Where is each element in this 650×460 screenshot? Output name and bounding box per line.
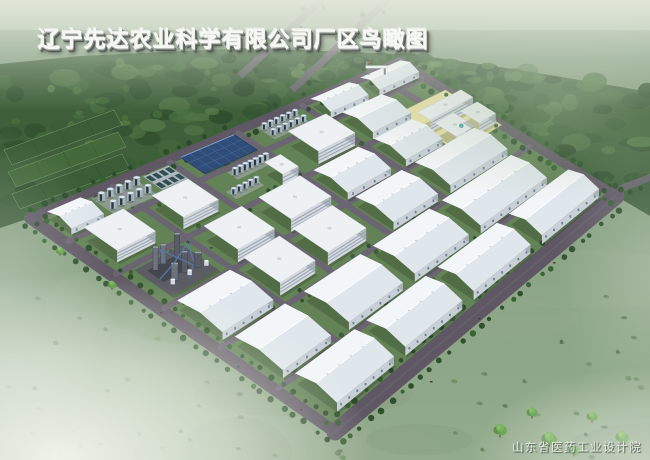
birdseye-rendering: 辽宁先达农业科学有限公司厂区鸟瞰图 山东省医药工业设计院 <box>0 0 650 460</box>
rendering-canvas <box>0 0 650 460</box>
design-institute-watermark: 山东省医药工业设计院 <box>512 439 642 455</box>
page-title: 辽宁先达农业科学有限公司厂区鸟瞰图 <box>38 22 429 54</box>
